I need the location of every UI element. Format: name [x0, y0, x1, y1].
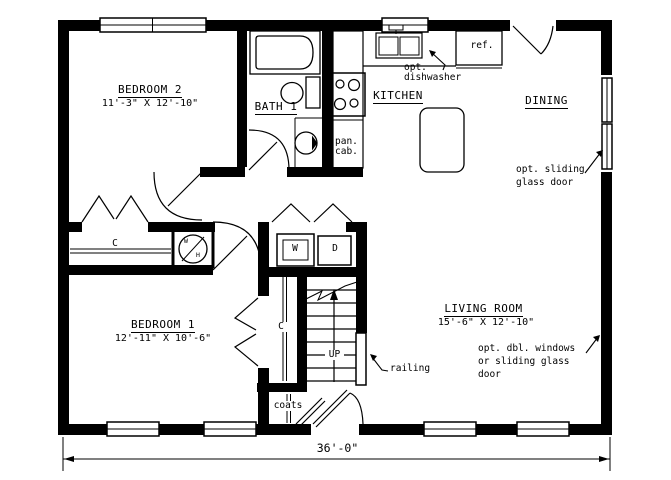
bifold-closet-bedroom2 [82, 196, 148, 222]
pantry-label-line2: cab. [335, 147, 358, 157]
room-label-bedroom1: BEDROOM 1 [115, 319, 211, 331]
room-label-bath1: BATH 1 [247, 101, 305, 113]
dim-arrow-right [599, 456, 609, 462]
door-front [313, 390, 363, 427]
sliding-door-note-line1: opt. sliding [516, 165, 585, 175]
bath-vanity [306, 77, 320, 108]
floor-plan: BEDROOM 2 11'-3" X 12'-10" BATH 1 KITCHE… [0, 0, 671, 480]
room-dims-bedroom1: 12'-11" X 10'-6" [101, 334, 225, 345]
washer-label: W [288, 244, 302, 254]
wall-closet-stub-west [63, 222, 82, 232]
wall-bath-west [237, 31, 247, 177]
burner-3 [335, 99, 346, 110]
stair-break-line [298, 281, 360, 303]
water-heater-label-w: W [184, 238, 188, 245]
burner-2 [349, 80, 360, 91]
bath-fixtures [250, 31, 322, 167]
burner-1 [336, 80, 344, 88]
toilet-tank [312, 136, 318, 151]
bifold-washer [272, 204, 310, 222]
room-label-bedroom2: BEDROOM 2 [102, 84, 198, 96]
wall-wd-stub-east [346, 222, 356, 232]
dbl-windows-note-line1: opt. dbl. windows [478, 344, 575, 354]
wall-stairs-east [356, 222, 367, 333]
closet-hall-label: C [108, 239, 122, 249]
stair-treads [306, 290, 356, 381]
bathtub-outline [250, 31, 320, 74]
dbl-windows-note-line2: or sliding glass [478, 357, 570, 367]
wall-coats-north [257, 383, 307, 392]
sink-bowl-right [400, 37, 419, 55]
room-dims-living: 15'-6" X 12'-10" [427, 318, 545, 329]
wall-stairs-west [297, 272, 307, 390]
opening-closet-bedroom1 [257, 296, 270, 368]
floor-plan-drawing [0, 0, 671, 480]
water-heater-label-h: H [196, 252, 200, 259]
dishwasher-note-line2: dishwasher [404, 73, 461, 83]
wall-stairs-north [258, 267, 367, 277]
door-bath [249, 130, 289, 170]
door-bedroom1 [213, 222, 261, 270]
closet-bedroom1-label: C [274, 322, 288, 332]
leader-dbl-windows-head [593, 335, 600, 342]
bifold-doors [82, 196, 352, 427]
sliding-door-note-line2: glass door [516, 178, 573, 188]
kitchen-island [420, 108, 464, 172]
dbl-windows-note-line3: door [478, 370, 501, 380]
railing-bar [356, 333, 366, 385]
burner-4 [350, 99, 358, 107]
sink-bowl-left [379, 37, 398, 55]
room-label-living: LIVING ROOM [436, 303, 531, 315]
coats-label: coats [271, 401, 305, 411]
stairs [298, 281, 366, 385]
refrigerator-label: ref. [468, 41, 496, 51]
stairs-up-label: UP [325, 350, 344, 360]
overall-width-dimension: 36'-0" [300, 442, 375, 454]
leader-sliding-door [585, 152, 601, 173]
bathtub-basin [256, 36, 313, 69]
bifold-dryer [314, 204, 352, 222]
room-label-dining: DINING [519, 95, 574, 107]
dim-arrow-left [64, 456, 74, 462]
closet-hall-shelf [70, 249, 171, 253]
range [331, 73, 365, 116]
leader-railing-head [370, 354, 377, 361]
dryer-label: D [328, 244, 342, 254]
room-dims-bedroom2: 11'-3" X 12'-10" [88, 99, 212, 110]
bifold-closet-bedroom1 [235, 298, 258, 366]
toilet-nook-lines [295, 118, 322, 167]
room-label-kitchen: KITCHEN [368, 90, 428, 102]
door-bedroom2 [154, 172, 202, 220]
railing-label: railing [390, 364, 430, 374]
